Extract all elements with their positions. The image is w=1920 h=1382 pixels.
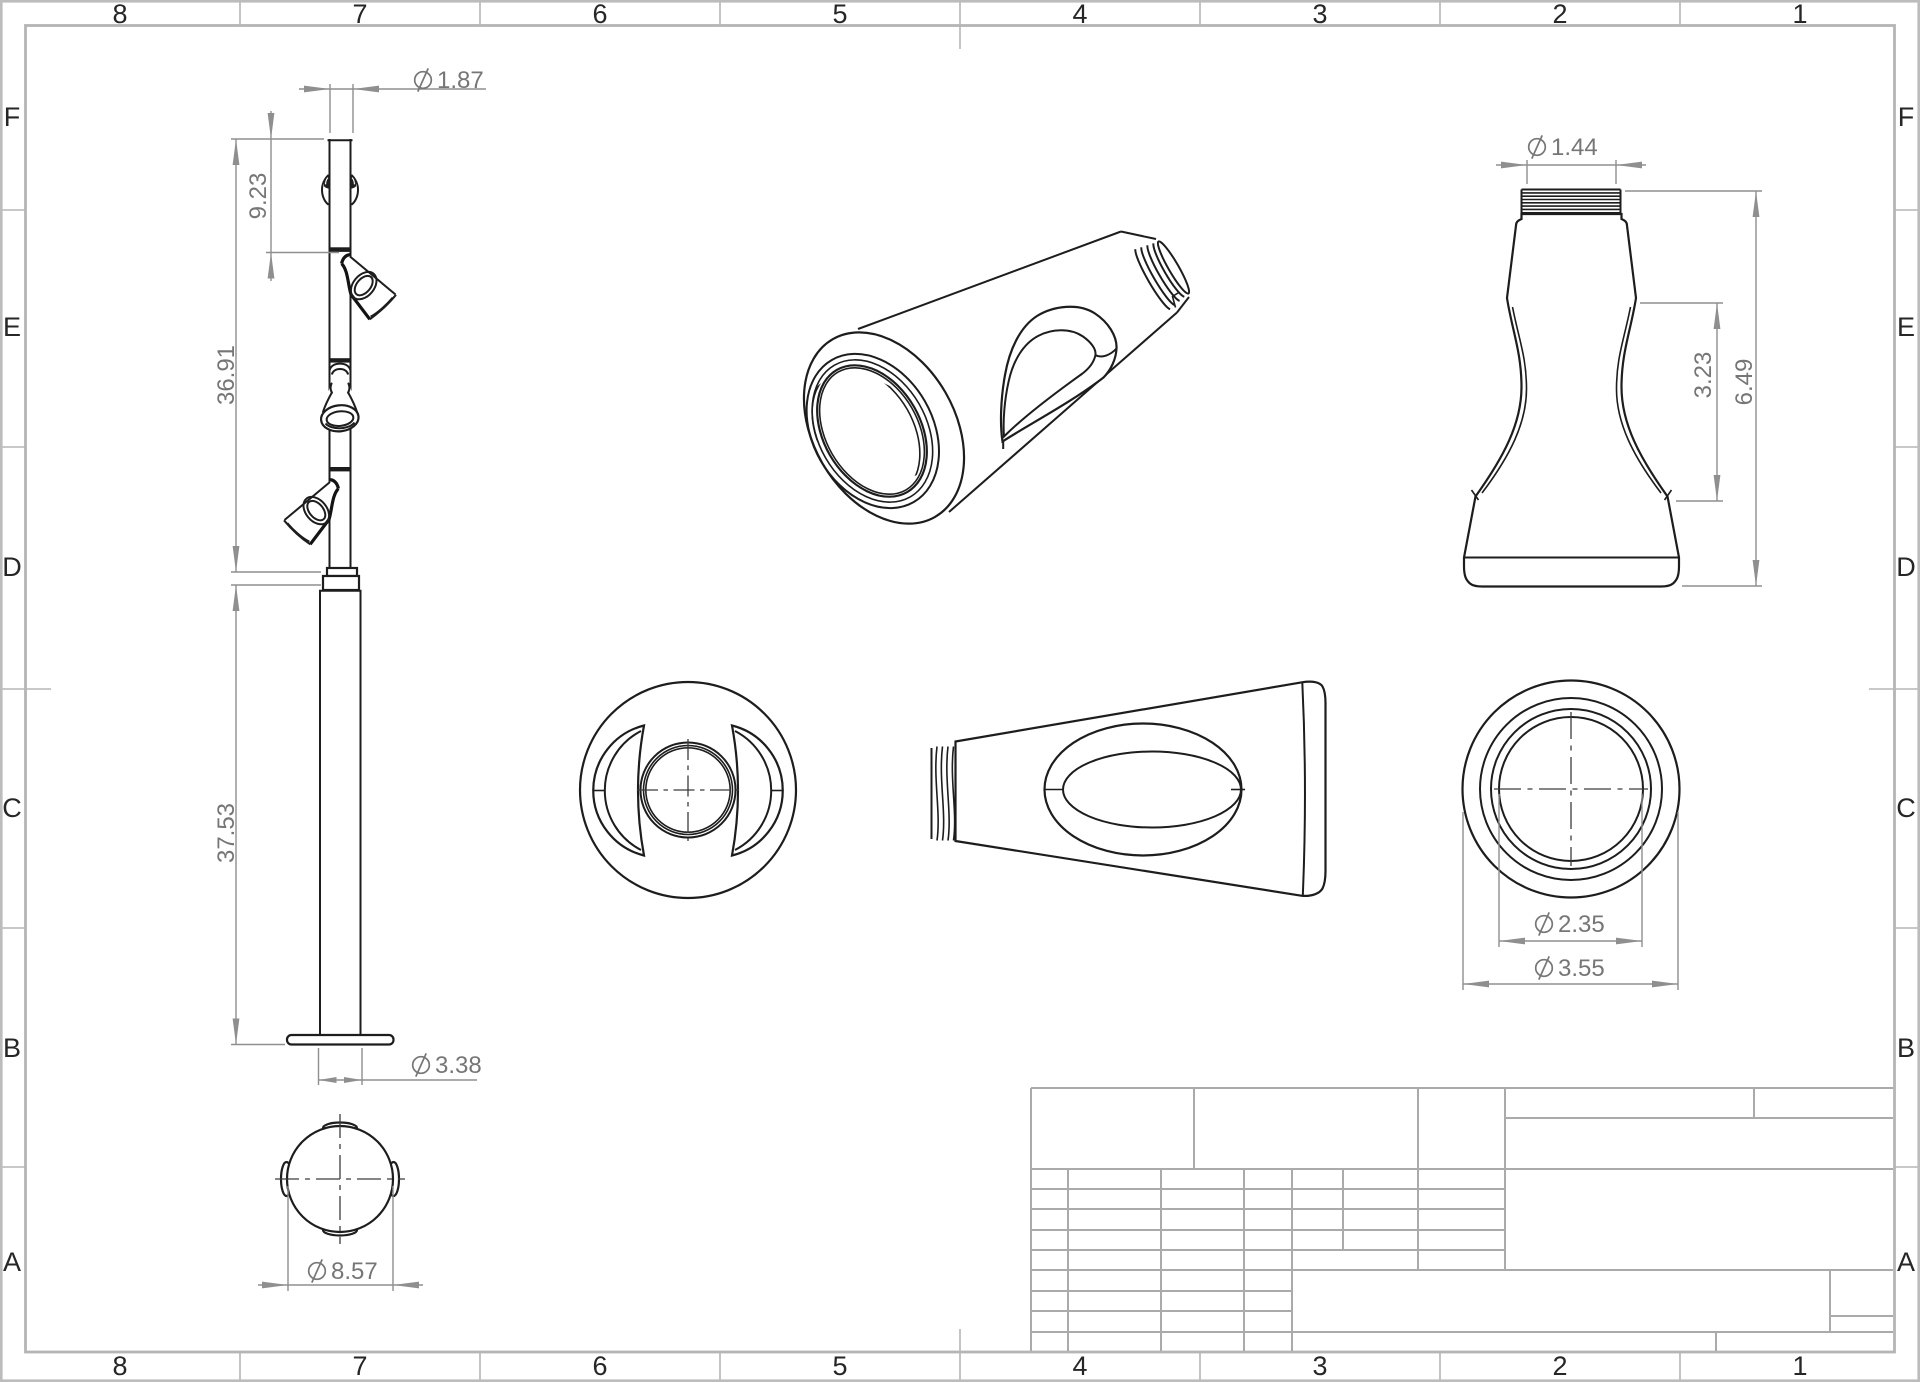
svg-text:8: 8: [112, 0, 127, 29]
svg-text:3.38: 3.38: [435, 1052, 482, 1079]
svg-text:5: 5: [832, 1351, 847, 1381]
svg-text:8: 8: [112, 1351, 127, 1381]
svg-text:1: 1: [1792, 0, 1807, 29]
svg-text:6.49: 6.49: [1731, 359, 1758, 406]
svg-text:37.53: 37.53: [213, 803, 240, 863]
svg-text:C: C: [2, 793, 22, 823]
svg-text:2: 2: [1552, 0, 1567, 29]
svg-text:E: E: [3, 312, 21, 342]
svg-text:1.44: 1.44: [1551, 134, 1598, 161]
svg-text:6: 6: [592, 0, 607, 29]
svg-text:7: 7: [352, 0, 367, 29]
svg-text:2: 2: [1552, 1351, 1567, 1381]
svg-text:F: F: [4, 102, 21, 132]
svg-text:C: C: [1896, 793, 1916, 823]
svg-text:9.23: 9.23: [245, 173, 272, 220]
svg-text:3: 3: [1312, 0, 1327, 29]
svg-text:3.23: 3.23: [1690, 352, 1717, 399]
svg-text:3.55: 3.55: [1558, 955, 1605, 982]
svg-text:3: 3: [1312, 1351, 1327, 1381]
svg-text:A: A: [3, 1247, 21, 1277]
svg-text:E: E: [1897, 312, 1915, 342]
svg-text:D: D: [1896, 552, 1916, 582]
svg-text:6: 6: [592, 1351, 607, 1381]
svg-text:1: 1: [1792, 1351, 1807, 1381]
svg-text:B: B: [3, 1033, 21, 1063]
svg-text:2.35: 2.35: [1558, 911, 1605, 938]
svg-text:4: 4: [1072, 0, 1087, 29]
svg-text:1.87: 1.87: [437, 67, 484, 94]
svg-text:A: A: [1897, 1247, 1915, 1277]
svg-text:4: 4: [1072, 1351, 1087, 1381]
svg-text:B: B: [1897, 1033, 1915, 1063]
svg-text:8.57: 8.57: [331, 1258, 378, 1285]
svg-text:F: F: [1898, 102, 1915, 132]
svg-text:36.91: 36.91: [213, 345, 240, 405]
svg-text:5: 5: [832, 0, 847, 29]
svg-text:7: 7: [352, 1351, 367, 1381]
svg-text:D: D: [2, 552, 22, 582]
